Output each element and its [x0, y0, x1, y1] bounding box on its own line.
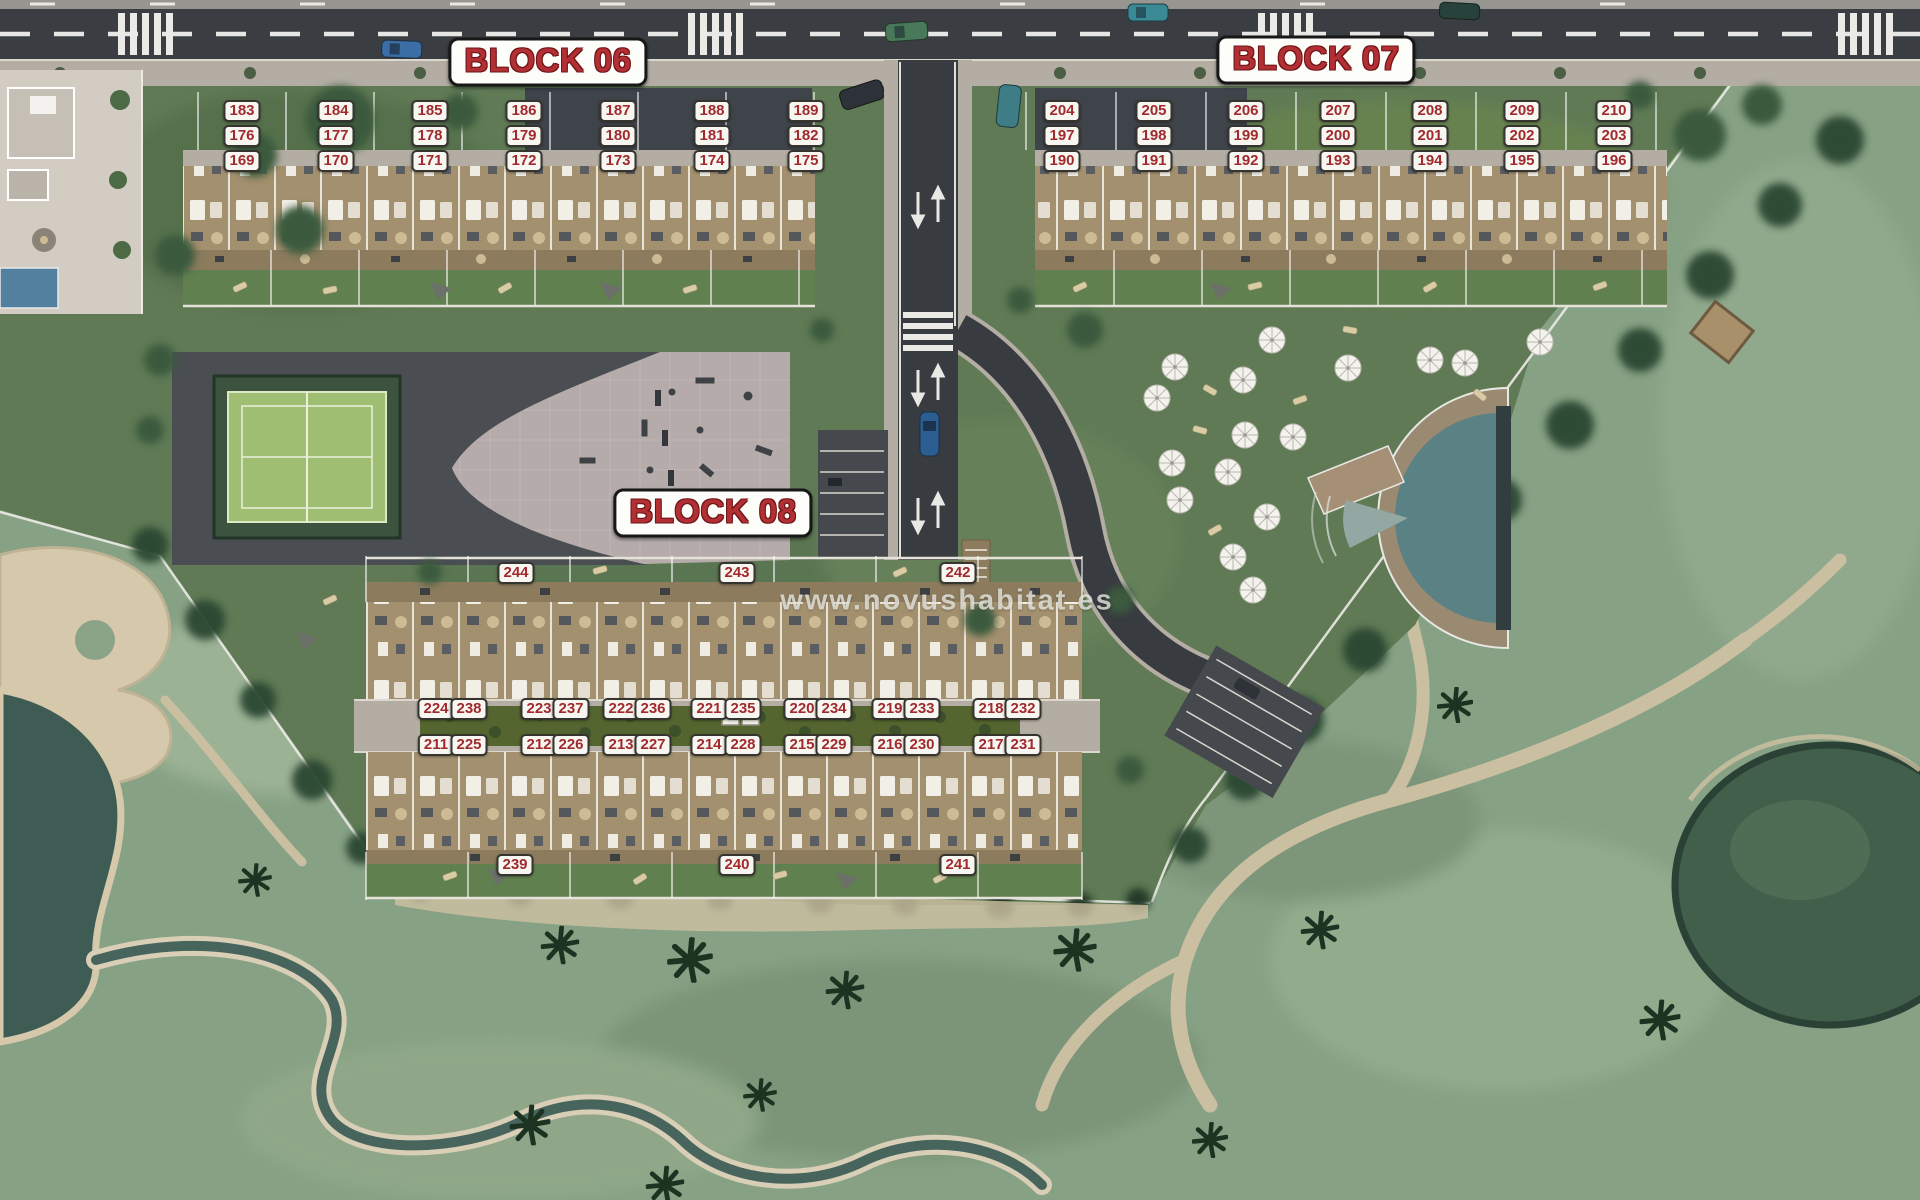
unit-badge-207: 207 — [1319, 100, 1356, 122]
watermark: www.novushabitat.es — [780, 585, 1113, 618]
unit-badge-233: 233 — [903, 698, 940, 720]
unit-badge-244: 244 — [497, 562, 534, 584]
unit-badge-232: 232 — [1004, 698, 1041, 720]
block-label-07: BLOCK 07 — [1216, 36, 1415, 85]
unit-badge-225: 225 — [450, 734, 487, 756]
unit-badge-190: 190 — [1043, 150, 1080, 172]
unit-badge-211: 211 — [418, 734, 454, 756]
unit-badge-200: 200 — [1319, 125, 1356, 147]
unit-badge-193: 193 — [1319, 150, 1356, 172]
unit-badge-196: 196 — [1595, 150, 1632, 172]
unit-badge-224: 224 — [417, 698, 454, 720]
unit-badge-231: 231 — [1004, 734, 1041, 756]
site-plan: www.novushabitat.es BLOCK 06183184185186… — [0, 0, 1920, 1200]
unit-badge-226: 226 — [552, 734, 589, 756]
block-label-06: BLOCK 06 — [448, 38, 647, 87]
unit-badge-191: 191 — [1135, 150, 1172, 172]
unit-badge-242: 242 — [939, 562, 976, 584]
unit-badge-240: 240 — [718, 854, 755, 876]
unit-badge-175: 175 — [787, 150, 824, 172]
unit-badge-174: 174 — [693, 150, 730, 172]
unit-badge-192: 192 — [1227, 150, 1264, 172]
unit-badge-234: 234 — [815, 698, 852, 720]
unit-badge-186: 186 — [505, 100, 542, 122]
unit-badge-169: 169 — [223, 150, 260, 172]
unit-badge-180: 180 — [599, 125, 636, 147]
unit-badge-209: 209 — [1503, 100, 1540, 122]
unit-badge-173: 173 — [599, 150, 636, 172]
unit-badge-177: 177 — [317, 125, 354, 147]
unit-badge-195: 195 — [1503, 150, 1540, 172]
show-home — [0, 70, 142, 314]
unit-badge-221: 221 — [690, 698, 727, 720]
unit-badge-176: 176 — [223, 125, 260, 147]
unit-badge-239: 239 — [496, 854, 533, 876]
car-on-access-road — [920, 412, 939, 456]
unit-badge-235: 235 — [724, 698, 761, 720]
unit-badge-208: 208 — [1411, 100, 1448, 122]
unit-badge-230: 230 — [903, 734, 940, 756]
unit-badge-243: 243 — [718, 562, 755, 584]
unit-badge-241: 241 — [939, 854, 976, 876]
unit-badge-199: 199 — [1227, 125, 1264, 147]
unit-badge-179: 179 — [505, 125, 542, 147]
unit-badge-197: 197 — [1043, 125, 1080, 147]
unit-badge-198: 198 — [1135, 125, 1172, 147]
unit-badge-206: 206 — [1227, 100, 1264, 122]
unit-badge-187: 187 — [599, 100, 636, 122]
unit-badge-202: 202 — [1503, 125, 1540, 147]
unit-badge-185: 185 — [411, 100, 448, 122]
unit-badge-188: 188 — [693, 100, 730, 122]
unit-badge-172: 172 — [505, 150, 542, 172]
unit-badge-181: 181 — [693, 125, 730, 147]
unit-badge-214: 214 — [690, 734, 727, 756]
block-label-08: BLOCK 08 — [613, 489, 812, 538]
unit-badge-227: 227 — [634, 734, 671, 756]
unit-badge-194: 194 — [1411, 150, 1448, 172]
padel-court — [214, 376, 400, 538]
unit-badge-204: 204 — [1043, 100, 1080, 122]
unit-badge-203: 203 — [1595, 125, 1632, 147]
unit-badge-182: 182 — [787, 125, 824, 147]
unit-badge-171: 171 — [411, 150, 448, 172]
unit-badge-228: 228 — [724, 734, 761, 756]
unit-badge-189: 189 — [787, 100, 824, 122]
unit-badge-236: 236 — [634, 698, 671, 720]
parking-left — [818, 430, 888, 558]
unit-badge-210: 210 — [1595, 100, 1632, 122]
unit-badge-183: 183 — [223, 100, 260, 122]
unit-badge-170: 170 — [317, 150, 354, 172]
unit-badge-229: 229 — [815, 734, 852, 756]
unit-badge-237: 237 — [552, 698, 589, 720]
unit-badge-184: 184 — [317, 100, 354, 122]
unit-badge-178: 178 — [411, 125, 448, 147]
unit-badge-205: 205 — [1135, 100, 1172, 122]
unit-badge-238: 238 — [450, 698, 487, 720]
unit-badge-201: 201 — [1411, 125, 1448, 147]
